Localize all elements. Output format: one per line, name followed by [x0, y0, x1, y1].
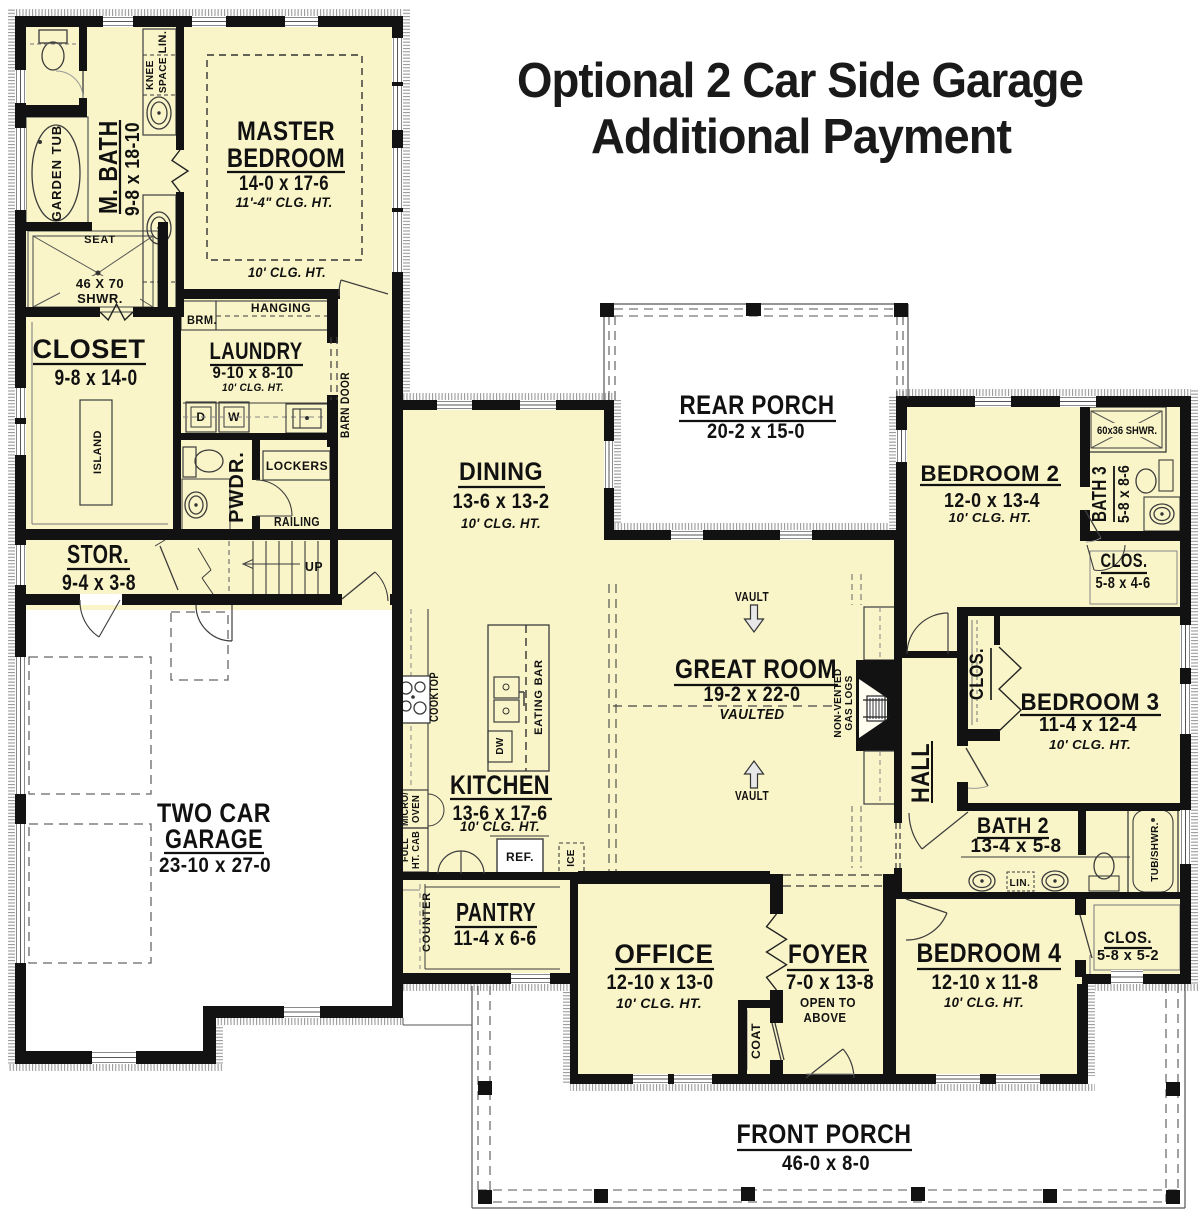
- svg-text:CLOS.: CLOS.: [967, 648, 988, 700]
- svg-text:COAT: COAT: [749, 1023, 763, 1059]
- svg-text:PWDR.: PWDR.: [226, 451, 248, 523]
- svg-text:LAUNDRY: LAUNDRY: [210, 338, 303, 365]
- svg-text:14-0 x 17-6: 14-0 x 17-6: [239, 172, 329, 195]
- svg-text:5-8 x 5-2: 5-8 x 5-2: [1097, 947, 1159, 964]
- svg-text:SEAT: SEAT: [84, 234, 116, 246]
- svg-text:M. BATH: M. BATH: [93, 120, 123, 214]
- svg-text:COOKTOP: COOKTOP: [427, 672, 441, 722]
- svg-text:LIN.: LIN.: [1010, 878, 1031, 889]
- svg-text:11-4 x 12-4: 11-4 x 12-4: [1039, 714, 1137, 736]
- svg-text:ICE: ICE: [566, 849, 577, 867]
- svg-text:HANGING: HANGING: [251, 301, 311, 315]
- svg-text:46-0 x 8-0: 46-0 x 8-0: [782, 1152, 870, 1175]
- svg-text:46 X 70: 46 X 70: [76, 276, 124, 291]
- svg-text:10' CLG. HT.: 10' CLG. HT.: [1049, 737, 1131, 752]
- svg-text:REF.: REF.: [506, 850, 534, 864]
- svg-text:VAULT: VAULT: [735, 589, 769, 604]
- svg-text:FOYER: FOYER: [788, 939, 868, 969]
- svg-text:OFFICE: OFFICE: [615, 939, 714, 969]
- svg-text:11-4 x 6-6: 11-4 x 6-6: [454, 927, 537, 950]
- svg-text:HALL: HALL: [907, 743, 935, 803]
- svg-text:20-2 x 15-0: 20-2 x 15-0: [707, 420, 805, 443]
- svg-text:19-2 x 22-0: 19-2 x 22-0: [704, 683, 801, 706]
- svg-text:23-10 x 27-0: 23-10 x 27-0: [159, 854, 271, 877]
- svg-text:11'-4" CLG. HT.: 11'-4" CLG. HT.: [236, 194, 333, 210]
- svg-text:12-10 x 11-8: 12-10 x 11-8: [932, 971, 1039, 994]
- svg-text:TUB/SHWR.: TUB/SHWR.: [1150, 822, 1161, 881]
- svg-text:BEDROOM 4: BEDROOM 4: [917, 938, 1062, 968]
- svg-text:13-4 x 5-8: 13-4 x 5-8: [971, 836, 1062, 857]
- svg-text:COUNTER: COUNTER: [421, 892, 433, 952]
- svg-text:ISLAND: ISLAND: [92, 430, 104, 474]
- svg-text:VAULTED: VAULTED: [720, 706, 785, 723]
- svg-text:Optional 2 Car Side Garage: Optional 2 Car Side Garage: [517, 54, 1083, 108]
- svg-text:10' CLG. HT.: 10' CLG. HT.: [616, 995, 702, 1011]
- svg-text:BATH 2: BATH 2: [977, 813, 1049, 838]
- svg-text:PANTRY: PANTRY: [456, 897, 536, 927]
- svg-text:9-10 x 8-10: 9-10 x 8-10: [213, 363, 294, 382]
- svg-text:5-8 x 8-6: 5-8 x 8-6: [1116, 465, 1133, 523]
- svg-text:13-6 x 13-2: 13-6 x 13-2: [453, 490, 550, 513]
- svg-text:VAULT: VAULT: [735, 788, 769, 803]
- svg-text:BEDROOM 2: BEDROOM 2: [921, 461, 1060, 486]
- svg-text:5-8 x 4-6: 5-8 x 4-6: [1096, 575, 1151, 592]
- svg-text:GARAGE: GARAGE: [165, 824, 263, 854]
- svg-text:GARDEN TUB: GARDEN TUB: [49, 125, 64, 222]
- svg-text:KNEE: KNEE: [145, 60, 156, 90]
- svg-text:CLOS.: CLOS.: [1101, 551, 1148, 572]
- svg-text:OPEN TO: OPEN TO: [800, 995, 856, 1010]
- svg-text:9-4 x 3-8: 9-4 x 3-8: [62, 570, 136, 595]
- svg-text:BEDROOM 3: BEDROOM 3: [1021, 689, 1160, 716]
- svg-text:MASTER: MASTER: [237, 116, 335, 146]
- svg-text:STOR.: STOR.: [67, 539, 129, 569]
- svg-text:GAS LOGS: GAS LOGS: [844, 675, 855, 730]
- svg-text:BATH 3: BATH 3: [1089, 466, 1111, 522]
- svg-text:UP: UP: [305, 559, 323, 574]
- svg-text:ABOVE: ABOVE: [804, 1010, 847, 1025]
- svg-text:CLOS.: CLOS.: [1104, 928, 1152, 947]
- svg-text:GREAT ROOM: GREAT ROOM: [675, 654, 837, 684]
- svg-text:10' CLG. HT.: 10' CLG. HT.: [461, 515, 541, 531]
- svg-text:10' CLG. HT.: 10' CLG. HT.: [949, 510, 1032, 525]
- svg-text:DINING: DINING: [459, 458, 543, 486]
- svg-text:12-0 x 13-4: 12-0 x 13-4: [944, 490, 1040, 512]
- svg-text:DW: DW: [495, 737, 506, 755]
- svg-text:10' CLG. HT.: 10' CLG. HT.: [944, 994, 1024, 1010]
- svg-text:BARN DOOR: BARN DOOR: [338, 372, 352, 438]
- svg-text:12-10 x 13-0: 12-10 x 13-0: [607, 971, 714, 994]
- svg-text:LIN.: LIN.: [157, 31, 169, 54]
- svg-text:9-8 x 18-10: 9-8 x 18-10: [122, 122, 144, 216]
- svg-text:BEDROOM: BEDROOM: [227, 143, 345, 173]
- svg-text:SPACE: SPACE: [158, 57, 169, 93]
- svg-text:HT. CAB: HT. CAB: [411, 831, 422, 869]
- svg-text:9-8 x 14-0: 9-8 x 14-0: [55, 365, 138, 390]
- svg-text:60x36 SHWR.: 60x36 SHWR.: [1097, 425, 1157, 437]
- svg-text:BRM.: BRM.: [187, 313, 217, 327]
- svg-text:FRONT PORCH: FRONT PORCH: [737, 1119, 912, 1149]
- svg-text:10' CLG. HT.: 10' CLG. HT.: [248, 264, 326, 280]
- svg-text:EATING BAR: EATING BAR: [533, 659, 545, 735]
- svg-text:10' CLG. HT.: 10' CLG. HT.: [460, 818, 540, 834]
- svg-text:OVEN: OVEN: [411, 795, 422, 823]
- svg-text:CLOSET: CLOSET: [33, 334, 146, 364]
- svg-text:LOCKERS: LOCKERS: [266, 459, 328, 473]
- svg-text:REAR PORCH: REAR PORCH: [680, 390, 835, 420]
- svg-text:Additional Payment: Additional Payment: [591, 110, 1012, 164]
- svg-text:KITCHEN: KITCHEN: [450, 770, 550, 800]
- svg-text:10' CLG. HT.: 10' CLG. HT.: [222, 382, 284, 394]
- svg-text:7-0 x 13-8: 7-0 x 13-8: [786, 971, 874, 994]
